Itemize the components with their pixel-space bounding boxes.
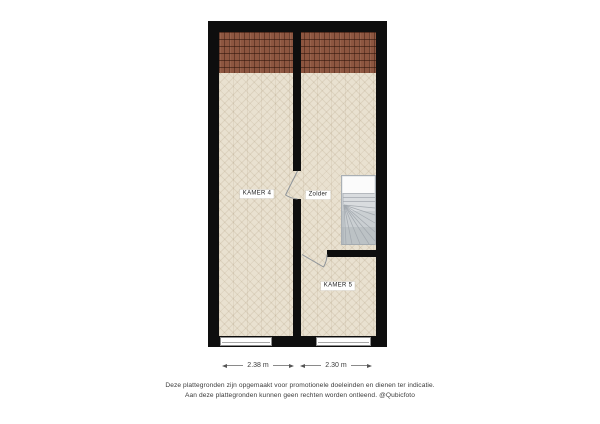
room-label-kamer4: KAMER 4 [240, 190, 274, 199]
disclaimer-line1: Deze plattegronden zijn opgemaakt voor p… [0, 381, 600, 391]
dimension-label-kamer4: 2.38 m [243, 362, 272, 369]
floorplan: KAMER 4 Zolder KAMER 5 [208, 21, 387, 347]
dimension-line [227, 365, 243, 366]
arrow-right-icon [367, 364, 372, 368]
dimension-label-kamer5: 2.30 m [321, 362, 350, 369]
dimension-line [305, 365, 321, 366]
door-swing-zolder [286, 171, 298, 199]
door-symbols [208, 21, 387, 347]
dimension-kamer4: 2.38 m [222, 361, 294, 370]
room-label-kamer5: KAMER 5 [321, 282, 355, 291]
arrow-right-icon [289, 364, 294, 368]
dimension-kamer5: 2.30 m [300, 361, 372, 370]
dimension-line [273, 365, 289, 366]
door-swing-kamer5 [302, 255, 327, 268]
page-canvas: KAMER 4 Zolder KAMER 5 2.38 m 2.30 m Dez… [0, 0, 600, 424]
disclaimer-line2: Aan deze plattegronden kunnen geen recht… [0, 391, 600, 401]
dimension-line [351, 365, 367, 366]
disclaimer: Deze plattegronden zijn opgemaakt voor p… [0, 381, 600, 400]
room-label-zolder: Zolder [306, 191, 331, 200]
